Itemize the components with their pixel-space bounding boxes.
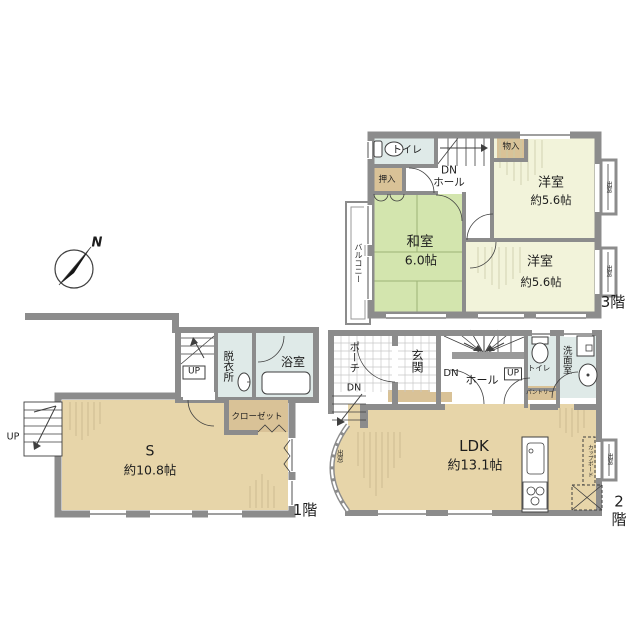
- oshiire-closet: [371, 168, 402, 193]
- toilet-icon-3f: [374, 141, 403, 157]
- western-room-2: [466, 242, 598, 315]
- toilet-icon-2f: [532, 337, 548, 363]
- floor3-plan: [346, 131, 616, 324]
- bay-window-3f-upper: [601, 160, 616, 214]
- kitchen-counter: [522, 437, 548, 512]
- floor1-plan: [24, 313, 316, 518]
- floor2-plan: [328, 330, 616, 518]
- exterior-stairs-1f: [24, 402, 62, 456]
- bathtub-icon: [262, 372, 310, 394]
- washing-machine-icon: [577, 336, 594, 356]
- up-box-1f: [183, 366, 205, 379]
- closet-1f: [224, 399, 288, 435]
- sink-icon-2f: [579, 364, 597, 386]
- floorplan-graphic: [0, 0, 640, 640]
- bay-window-3f-lower: [601, 248, 616, 296]
- ldk-room: [334, 404, 597, 510]
- compass-icon: [55, 247, 93, 288]
- sink-icon-1f: [238, 373, 250, 391]
- floorplan-page: N トイレ 物入 押入 DN ホール 洋室 約5.6帖 和室 6.0帖 洋室 約…: [0, 0, 640, 640]
